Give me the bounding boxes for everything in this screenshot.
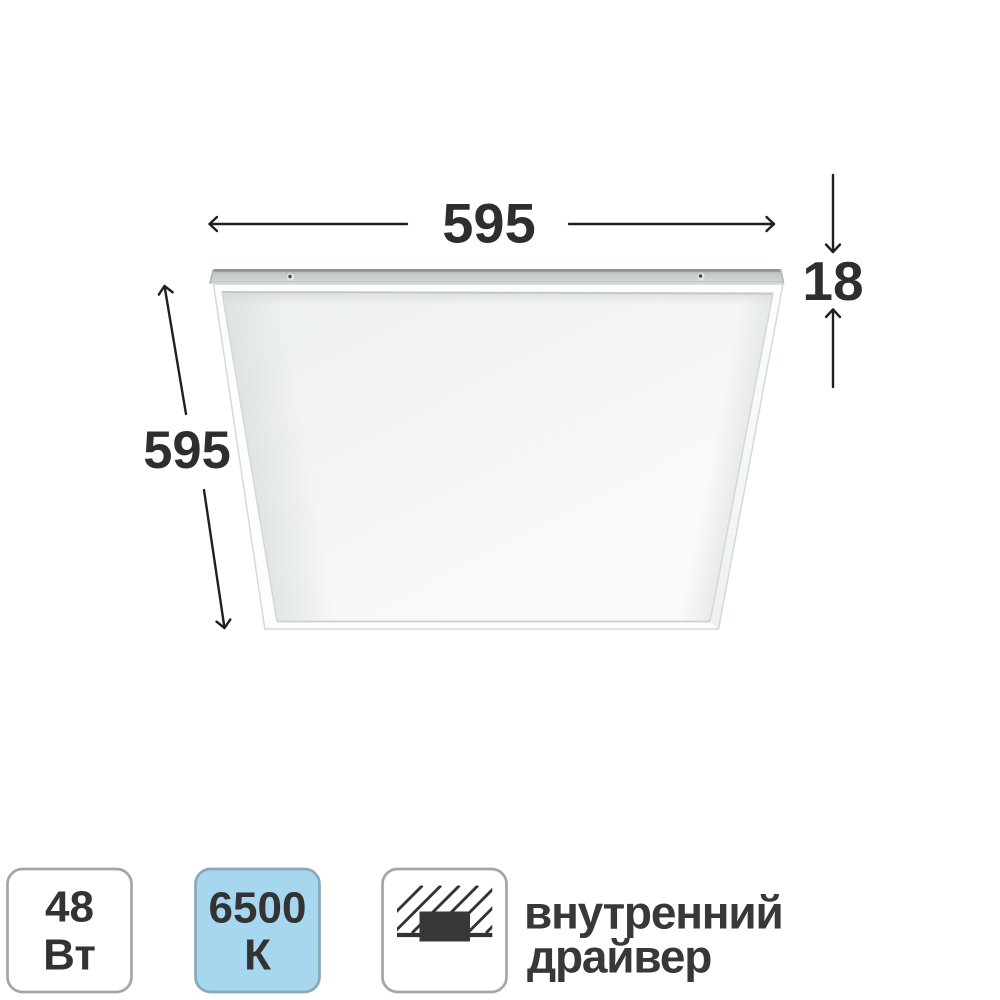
svg-text:Вт: Вт: [43, 931, 96, 980]
svg-text:595: 595: [442, 192, 535, 255]
svg-text:К: К: [244, 931, 271, 980]
svg-text:18: 18: [802, 250, 863, 312]
svg-text:6500: 6500: [209, 884, 307, 933]
svg-text:595: 595: [143, 421, 231, 480]
svg-text:драйвер: драйвер: [527, 931, 711, 983]
svg-text:48: 48: [45, 883, 94, 932]
